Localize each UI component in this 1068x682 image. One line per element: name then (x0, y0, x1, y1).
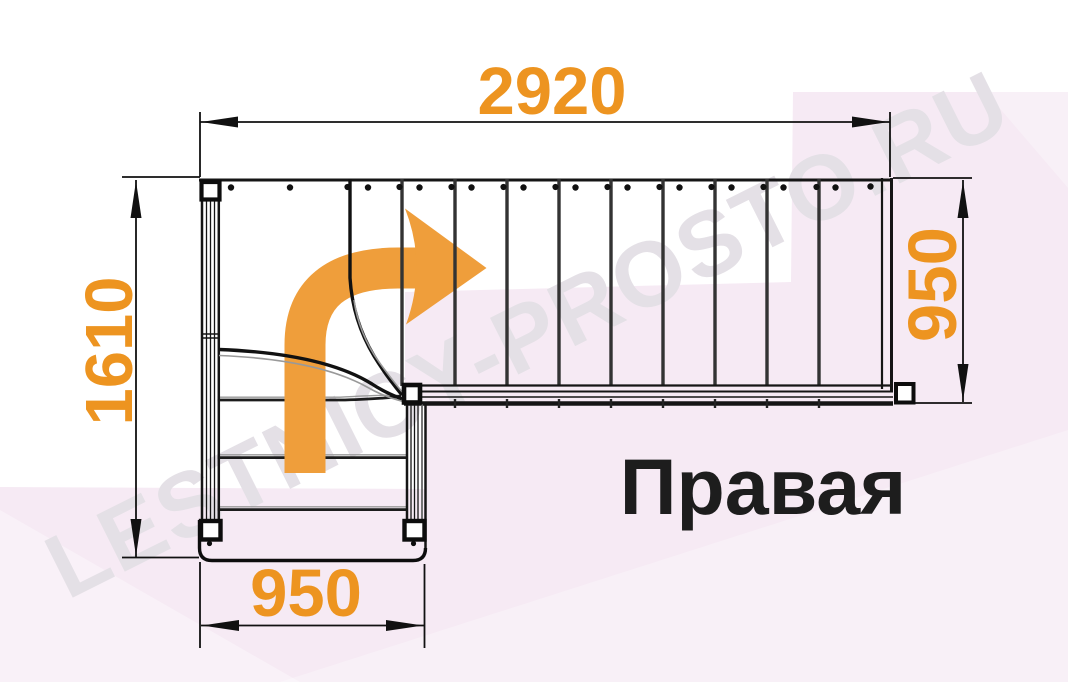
svg-text:1610: 1610 (72, 276, 147, 425)
svg-text:950: 950 (250, 556, 362, 631)
svg-text:2920: 2920 (477, 54, 626, 129)
svg-text:Правая: Правая (620, 442, 907, 531)
svg-text:950: 950 (894, 227, 971, 342)
